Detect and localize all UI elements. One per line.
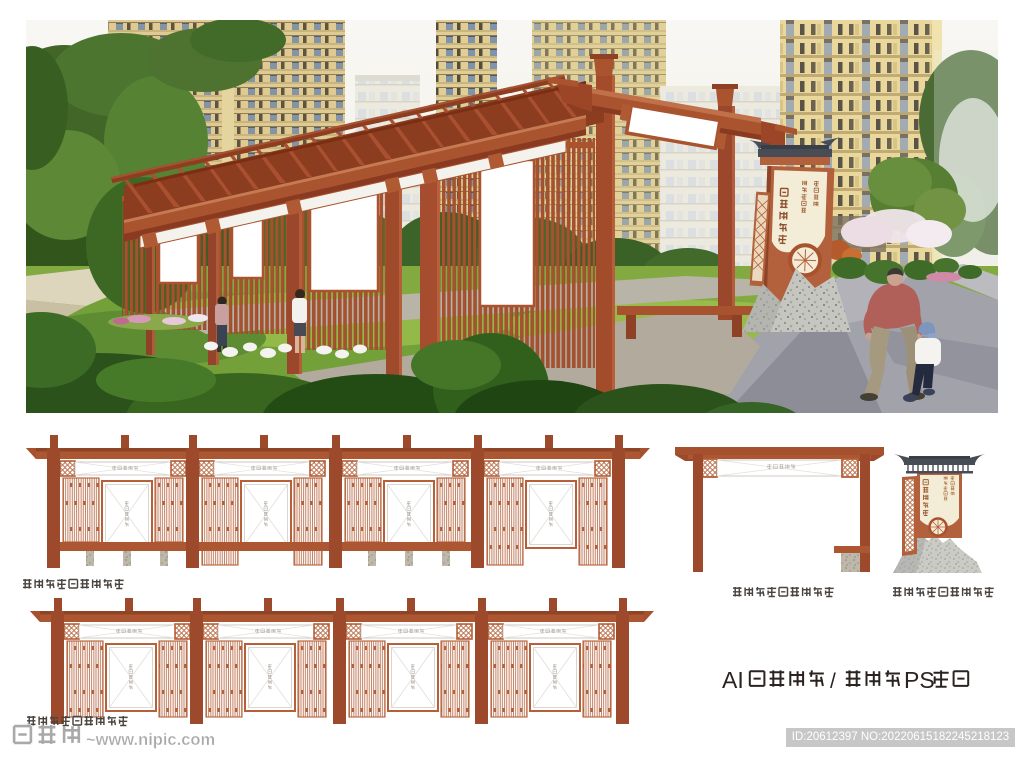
svg-text:PS: PS	[904, 667, 935, 693]
svg-text:/: /	[830, 670, 836, 693]
svg-text:~www.nipic.com: ~www.nipic.com	[86, 731, 215, 749]
svg-text:AI: AI	[722, 667, 744, 693]
